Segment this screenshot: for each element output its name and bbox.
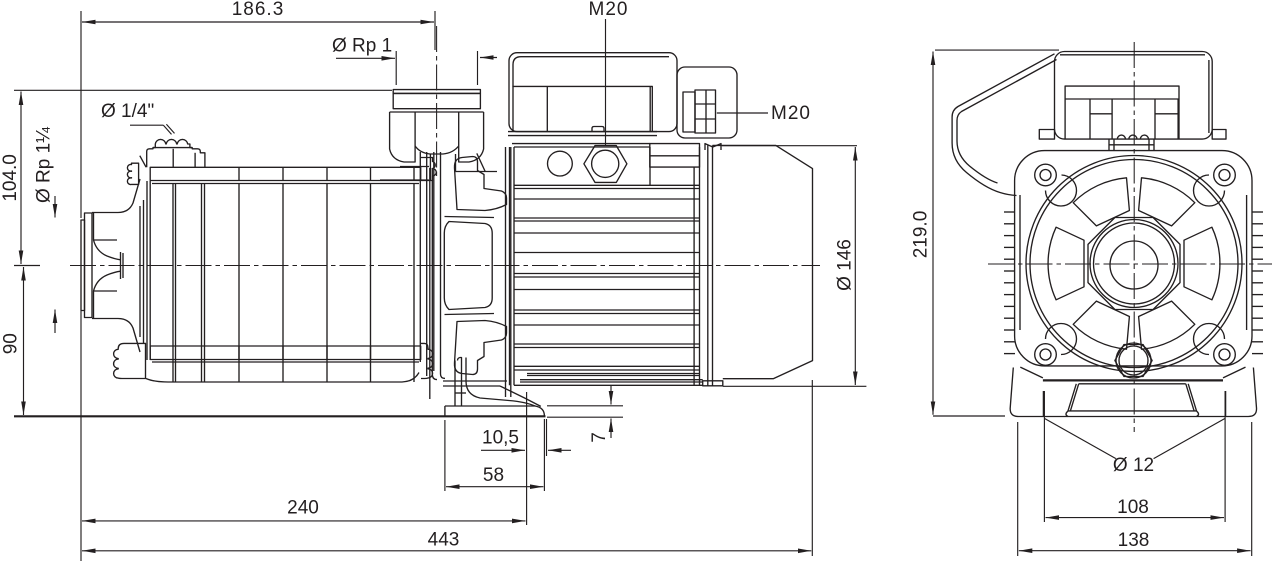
svg-text:7: 7	[589, 432, 610, 443]
svg-text:Ø Rp 1¼: Ø Rp 1¼	[34, 126, 55, 203]
svg-text:Ø 146: Ø 146	[835, 239, 856, 291]
svg-text:186.3: 186.3	[232, 0, 285, 20]
svg-text:138: 138	[1118, 530, 1150, 551]
svg-text:M20: M20	[771, 103, 811, 124]
svg-text:90: 90	[0, 333, 21, 354]
svg-text:M20: M20	[589, 0, 629, 20]
svg-text:104.0: 104.0	[0, 154, 21, 202]
svg-text:Ø 1/4": Ø 1/4"	[101, 101, 154, 122]
svg-text:108: 108	[1117, 497, 1149, 518]
svg-text:219.0: 219.0	[911, 211, 932, 259]
svg-text:240: 240	[287, 498, 319, 519]
svg-text:Ø 12: Ø 12	[1113, 455, 1154, 476]
svg-text:10,5: 10,5	[482, 428, 519, 449]
svg-text:443: 443	[428, 530, 460, 551]
svg-text:Ø Rp 1: Ø Rp 1	[332, 36, 392, 57]
svg-text:58: 58	[483, 465, 504, 486]
